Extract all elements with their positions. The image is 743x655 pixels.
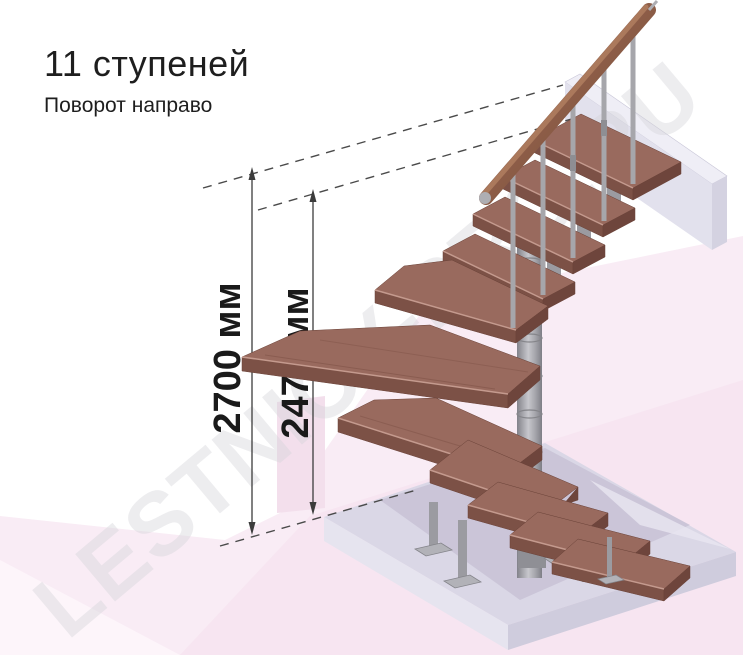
staircase-diagram: LESTNICY-PRO.RU 2700 мм 2475 мм — [0, 0, 743, 655]
handrail-end-cap — [479, 192, 491, 204]
page-title: 11 ступеней — [44, 43, 249, 84]
page-subtitle: Поворот направо — [44, 94, 212, 117]
